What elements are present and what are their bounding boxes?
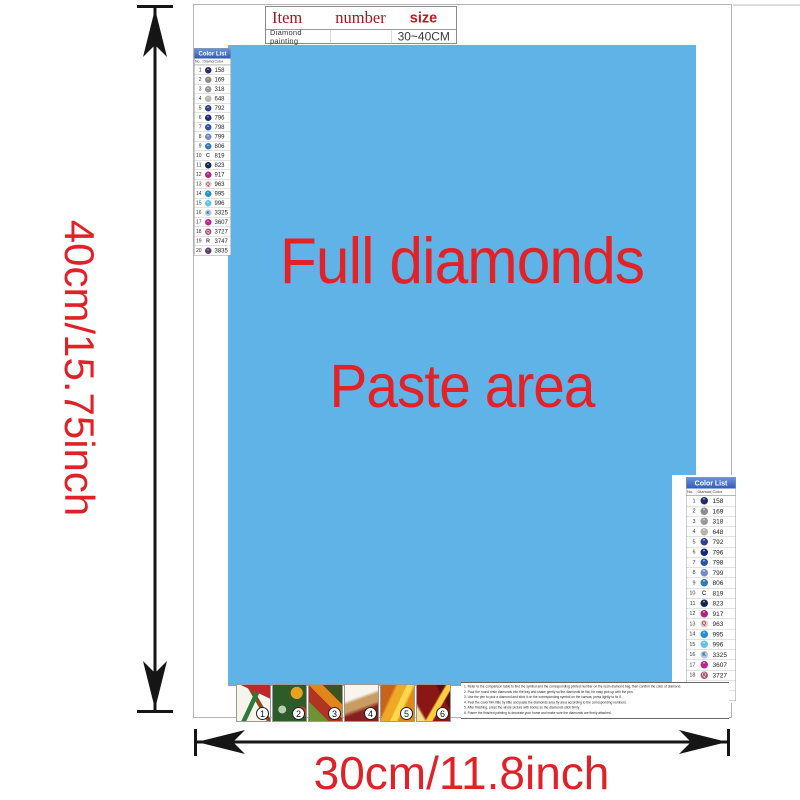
- color-row-8: 8*799: [687, 567, 736, 577]
- color-symbol-cell: R: [203, 238, 214, 244]
- color-symbol-cell: *: [697, 600, 712, 608]
- diamond-swatch-icon: *: [205, 247, 212, 254]
- instruction-line-6: 6. Frame the finished painting to decora…: [464, 711, 726, 716]
- diamond-swatch-icon: *: [205, 219, 212, 226]
- color-row-16: 16K3325: [687, 649, 736, 659]
- color-no: 5: [195, 105, 203, 111]
- color-code: 3727: [712, 671, 737, 679]
- step-number-badge: 6: [436, 707, 449, 720]
- item-table-grid: Item number size Diamond painting 30~40C…: [265, 6, 457, 44]
- color-list-right: Color List No. Diamond Color 1*1582*1693…: [686, 477, 736, 700]
- color-row-11: 11*823: [195, 160, 231, 170]
- diamond-swatch-icon: Q: [700, 620, 708, 628]
- color-row-17: 17*3607: [195, 217, 231, 227]
- diamond-swatch-icon: Q: [205, 228, 212, 235]
- diamond-swatch-icon: *: [700, 497, 708, 505]
- item-table-row-number: [330, 29, 391, 44]
- color-no: 14: [195, 191, 203, 197]
- color-no: 12: [687, 611, 697, 617]
- height-dimension-label: 40cm/15.75inch: [51, 215, 103, 521]
- diamond-swatch-icon: *: [205, 105, 212, 112]
- diamond-swatch-icon: *: [205, 67, 212, 74]
- color-no: 1: [687, 498, 697, 504]
- diamond-swatch-icon: *: [205, 190, 212, 197]
- color-row-20: 20*3835: [195, 246, 231, 256]
- color-row-7: 7*798: [687, 557, 736, 567]
- color-code: 3325: [214, 209, 232, 216]
- color-symbol-cell: *: [203, 162, 214, 169]
- color-code: 917: [214, 171, 232, 178]
- step-number-badge: 4: [364, 707, 377, 720]
- color-code: 823: [712, 600, 737, 608]
- color-code: 798: [712, 559, 737, 567]
- color-code: 648: [214, 95, 232, 102]
- color-row-3: 3*318: [195, 84, 231, 94]
- color-symbol-cell: *: [203, 200, 214, 207]
- color-no: 1: [195, 67, 203, 73]
- diamond-swatch-icon: K: [700, 651, 708, 659]
- diamond-swatch-icon: *: [700, 661, 708, 669]
- color-symbol-cell: Q: [203, 181, 214, 188]
- color-symbol-cell: *: [697, 548, 712, 556]
- step-number-badge: 5: [400, 707, 413, 720]
- color-code: 169: [712, 507, 737, 515]
- color-no: 2: [195, 77, 203, 83]
- color-no: 11: [195, 162, 203, 168]
- color-code: 819: [214, 152, 232, 159]
- color-symbol-cell: *: [203, 105, 214, 112]
- color-code: 3747: [214, 238, 232, 245]
- color-row-12: 12*917: [195, 170, 231, 180]
- color-symbol-cell: *: [697, 518, 712, 526]
- color-list-rows: 1*1582*1693*3184*6485*7926*7967*7988*799…: [687, 496, 736, 701]
- color-code: 318: [214, 86, 232, 93]
- color-no: 4: [195, 96, 203, 102]
- step-thumbnail-1: 1: [236, 684, 271, 722]
- color-code: 806: [214, 143, 232, 150]
- diamond-swatch-icon: *: [205, 76, 212, 83]
- diamond-swatch-icon: *: [205, 133, 212, 140]
- diamond-swatch-icon: *: [700, 610, 708, 618]
- color-row-5: 5*792: [687, 537, 736, 547]
- step-thumbnail-2: 2: [272, 684, 307, 722]
- diamond-swatch-icon: *: [205, 162, 212, 169]
- color-no: 3: [687, 518, 697, 524]
- color-symbol-cell: *: [203, 124, 214, 131]
- item-table-header-number: number: [330, 7, 391, 29]
- item-table-header-item: Item: [266, 7, 330, 29]
- color-symbol-cell: *: [697, 610, 712, 618]
- color-no: 17: [687, 662, 697, 668]
- diamond-swatch-icon: *: [700, 600, 708, 608]
- color-no: 13: [195, 181, 203, 187]
- width-dimension-label: 30cm/11.8inch: [193, 746, 730, 800]
- color-symbol-cell: *: [203, 143, 214, 150]
- color-no: 15: [687, 641, 697, 647]
- diamond-swatch-icon: *: [205, 114, 212, 121]
- color-no: 5: [687, 539, 697, 545]
- color-list-left: Color List No. Diamond Color 1*1582*1693…: [194, 48, 231, 255]
- color-symbol-cell: *: [203, 190, 214, 197]
- item-table-header-size: size: [391, 7, 456, 29]
- color-code: 648: [712, 528, 737, 536]
- col-symbol: Diamond: [697, 490, 712, 495]
- diamond-swatch-icon: *: [700, 518, 708, 526]
- color-code: 798: [214, 124, 232, 131]
- col-color: Color: [214, 60, 232, 64]
- color-no: 18: [687, 672, 697, 678]
- color-code: 963: [712, 620, 737, 628]
- color-code: 806: [712, 579, 737, 587]
- color-list-table: Color List No. Diamond Color 1*1582*1693…: [686, 477, 736, 701]
- item-table-row-size: 30~40CM: [391, 29, 456, 44]
- color-row-18: 18Q3727: [687, 670, 736, 680]
- color-no: 3: [195, 86, 203, 92]
- diamond-swatch-icon: *: [700, 579, 708, 587]
- sheet-edge-shadow: [733, 4, 800, 6]
- color-no: 6: [195, 115, 203, 121]
- diamond-swatch-icon: *: [205, 95, 212, 102]
- color-code: 158: [712, 497, 737, 505]
- color-symbol-cell: *: [203, 67, 214, 74]
- color-row-18: 18Q3727: [195, 227, 231, 237]
- item-table-row-name: Diamond painting: [266, 29, 330, 44]
- color-row-15: 15*996: [687, 639, 736, 649]
- color-symbol-cell: *: [697, 641, 712, 649]
- color-code: 796: [214, 114, 232, 121]
- color-symbol-cell: *: [697, 559, 712, 567]
- step-thumbnail-3: 3: [308, 684, 343, 722]
- diamond-swatch-icon: *: [205, 86, 212, 93]
- color-symbol-cell: K: [697, 651, 712, 659]
- color-row-15: 15*996: [195, 198, 231, 208]
- diamond-swatch-icon: *: [700, 641, 708, 649]
- color-no: 4: [687, 529, 697, 535]
- color-symbol-cell: *: [697, 630, 712, 638]
- color-code: 169: [214, 76, 232, 83]
- color-no: 10: [195, 153, 203, 159]
- color-no: 18: [195, 229, 203, 235]
- color-no: 8: [687, 570, 697, 576]
- color-symbol-cell: *: [203, 114, 214, 121]
- diamond-symbol-letter: R: [206, 238, 210, 244]
- diamond-swatch-icon: *: [700, 538, 708, 546]
- color-row-9: 9*806: [687, 578, 736, 588]
- col-color: Color: [712, 490, 737, 495]
- diamond-swatch-icon: Q: [700, 671, 708, 679]
- color-no: 7: [687, 559, 697, 565]
- color-no: 12: [195, 172, 203, 178]
- color-row-19: 19R3747: [195, 236, 231, 246]
- color-row-1: 1*158: [195, 65, 231, 75]
- color-symbol-cell: Q: [697, 620, 712, 628]
- diamond-swatch-icon: *: [205, 143, 212, 150]
- color-symbol-cell: Q: [697, 671, 712, 679]
- diamond-swatch-icon: *: [700, 548, 708, 556]
- color-row-2: 2*169: [687, 506, 736, 516]
- col-no: No.: [195, 60, 203, 64]
- color-list-table: Color List No. Diamond Color 1*1582*1693…: [194, 48, 231, 256]
- step-thumbnail-4: 4: [344, 684, 379, 722]
- step-thumbnail-5: 5: [380, 684, 415, 722]
- color-no: 10: [687, 590, 697, 596]
- color-no: 6: [687, 549, 697, 555]
- color-no: 7: [195, 124, 203, 130]
- instructions-box: 1. Refer to the comparison table to find…: [461, 682, 729, 719]
- diamond-swatch-icon: Q: [205, 181, 212, 188]
- color-symbol-cell: *: [203, 86, 214, 93]
- color-code: 819: [712, 589, 737, 597]
- step-number-badge: 3: [328, 707, 341, 720]
- color-row-2: 2*169: [195, 75, 231, 85]
- color-symbol-cell: *: [203, 76, 214, 83]
- item-table: Item number size Diamond painting 30~40C…: [265, 6, 457, 44]
- instructions-text: 1. Refer to the comparison table to find…: [461, 683, 729, 719]
- col-symbol: Diamond: [203, 60, 214, 64]
- paste-area-title: Full diamonds: [244, 223, 679, 298]
- diamond-swatch-icon: *: [205, 124, 212, 131]
- color-no: 20: [195, 248, 203, 254]
- color-row-4: 4*648: [195, 94, 231, 104]
- color-code: 799: [712, 569, 737, 577]
- color-no: 14: [687, 631, 697, 637]
- color-row-17: 17*3607: [687, 660, 736, 670]
- color-row-3: 3*318: [687, 516, 736, 526]
- color-code: 792: [712, 538, 737, 546]
- diamond-swatch-icon: *: [700, 559, 708, 567]
- col-no: No.: [687, 490, 697, 495]
- diamond-swatch-icon: *: [205, 200, 212, 207]
- color-symbol-cell: C: [697, 590, 712, 597]
- color-row-6: 6*796: [687, 547, 736, 557]
- color-code: 3835: [214, 247, 232, 254]
- color-row-9: 9*806: [195, 141, 231, 151]
- color-code: 996: [712, 641, 737, 649]
- paste-area: Full diamonds Paste area: [228, 45, 696, 686]
- color-symbol-cell: *: [697, 538, 712, 546]
- color-code: 823: [214, 162, 232, 169]
- diamond-swatch-icon: *: [700, 569, 708, 577]
- color-symbol-cell: K: [203, 209, 214, 216]
- color-list-title: Color List: [687, 478, 736, 489]
- color-row-4: 4*648: [687, 526, 736, 536]
- color-row-6: 6*796: [195, 113, 231, 123]
- color-code: 792: [214, 105, 232, 112]
- color-row-5: 5*792: [195, 103, 231, 113]
- color-code: 995: [214, 190, 232, 197]
- color-row-8: 8*799: [195, 132, 231, 142]
- color-code: 318: [712, 518, 737, 526]
- color-code: 3325: [712, 651, 737, 659]
- color-list-rows: 1*1582*1693*3184*6485*7926*7967*7988*799…: [195, 65, 231, 255]
- color-symbol-cell: *: [203, 247, 214, 254]
- color-code: 3727: [214, 228, 232, 235]
- color-symbol-cell: *: [697, 507, 712, 515]
- color-code: 963: [214, 181, 232, 188]
- color-code: 3607: [214, 219, 232, 226]
- color-row-10: 10C819: [687, 588, 736, 598]
- diamond-swatch-icon: *: [700, 630, 708, 638]
- step-thumbnail-6: 6: [416, 684, 451, 722]
- vertical-dimension-arrow: [133, 0, 177, 720]
- color-row-1: 1*158: [687, 496, 736, 506]
- color-no: 8: [195, 134, 203, 140]
- color-no: 2: [687, 508, 697, 514]
- product-image: 40cm/15.75inch Item number size Diamond …: [0, 0, 800, 800]
- color-row-14: 14*995: [195, 189, 231, 199]
- color-no: 17: [195, 219, 203, 225]
- color-symbol-cell: *: [697, 569, 712, 577]
- color-code: 796: [712, 548, 737, 556]
- color-row-16: 16K3325: [195, 208, 231, 218]
- color-list-subheader: No. Diamond Color: [687, 489, 736, 496]
- paste-area-subtitle: Paste area: [244, 351, 679, 421]
- color-no: 19: [195, 238, 203, 244]
- color-symbol-cell: C: [203, 153, 214, 159]
- diamond-swatch-icon: *: [205, 171, 212, 178]
- color-no: 15: [195, 200, 203, 206]
- color-no: 11: [687, 600, 697, 606]
- color-symbol-cell: *: [203, 219, 214, 226]
- color-no: 13: [687, 621, 697, 627]
- color-no: 9: [687, 580, 697, 586]
- diamond-symbol-letter: C: [206, 153, 210, 159]
- color-symbol-cell: *: [697, 661, 712, 669]
- color-row-11: 11*823: [687, 598, 736, 608]
- color-row-13: 13Q963: [195, 179, 231, 189]
- color-code: 995: [712, 630, 737, 638]
- diamond-symbol-letter: C: [702, 590, 706, 597]
- color-code: 158: [214, 67, 232, 74]
- color-symbol-cell: *: [697, 579, 712, 587]
- color-row-12: 12*917: [687, 608, 736, 618]
- diamond-swatch-icon: K: [205, 209, 212, 216]
- color-code: 799: [214, 133, 232, 140]
- color-symbol-cell: *: [203, 133, 214, 140]
- diamond-swatch-icon: *: [700, 507, 708, 515]
- color-symbol-cell: *: [203, 171, 214, 178]
- step-thumbnails: 123456: [236, 684, 451, 722]
- color-symbol-cell: *: [697, 528, 712, 536]
- color-symbol-cell: *: [203, 95, 214, 102]
- color-symbol-cell: Q: [203, 228, 214, 235]
- color-no: 9: [195, 143, 203, 149]
- color-no: 16: [195, 210, 203, 216]
- color-no: 16: [687, 652, 697, 658]
- color-code: 996: [214, 200, 232, 207]
- diamond-swatch-icon: *: [700, 528, 708, 536]
- color-row-7: 7*798: [195, 122, 231, 132]
- step-number-badge: 1: [256, 707, 269, 720]
- color-code: 917: [712, 610, 737, 618]
- color-row-13: 13Q963: [687, 619, 736, 629]
- color-code: 3607: [712, 661, 737, 669]
- color-list-title: Color List: [195, 49, 231, 59]
- color-symbol-cell: *: [697, 497, 712, 505]
- color-row-14: 14*995: [687, 629, 736, 639]
- step-number-badge: 2: [292, 707, 305, 720]
- color-row-10: 10C819: [195, 151, 231, 161]
